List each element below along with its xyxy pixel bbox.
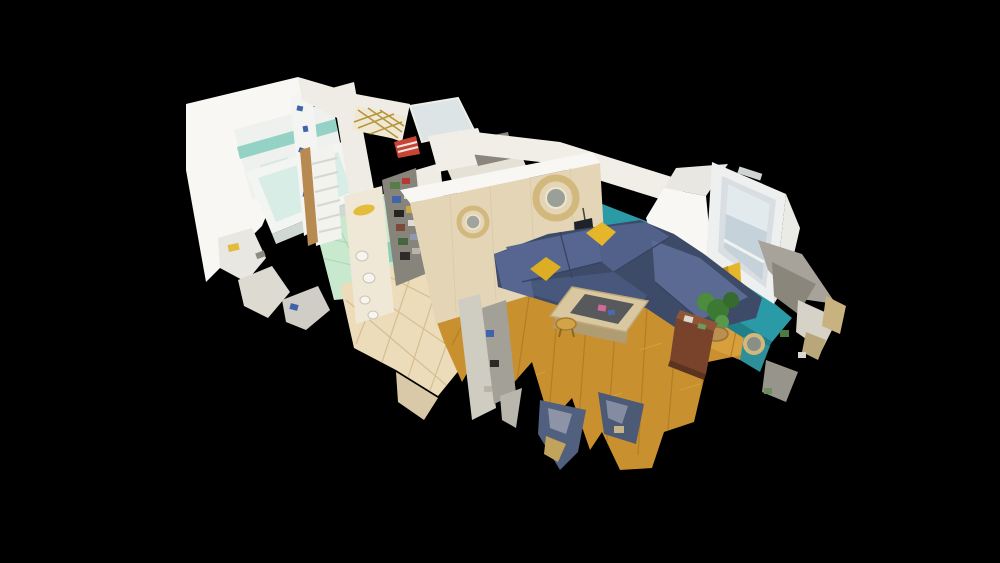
chair-fragment-left (538, 400, 586, 470)
mirror-fragment (745, 335, 763, 353)
dollhouse-model[interactable] (0, 0, 1000, 563)
